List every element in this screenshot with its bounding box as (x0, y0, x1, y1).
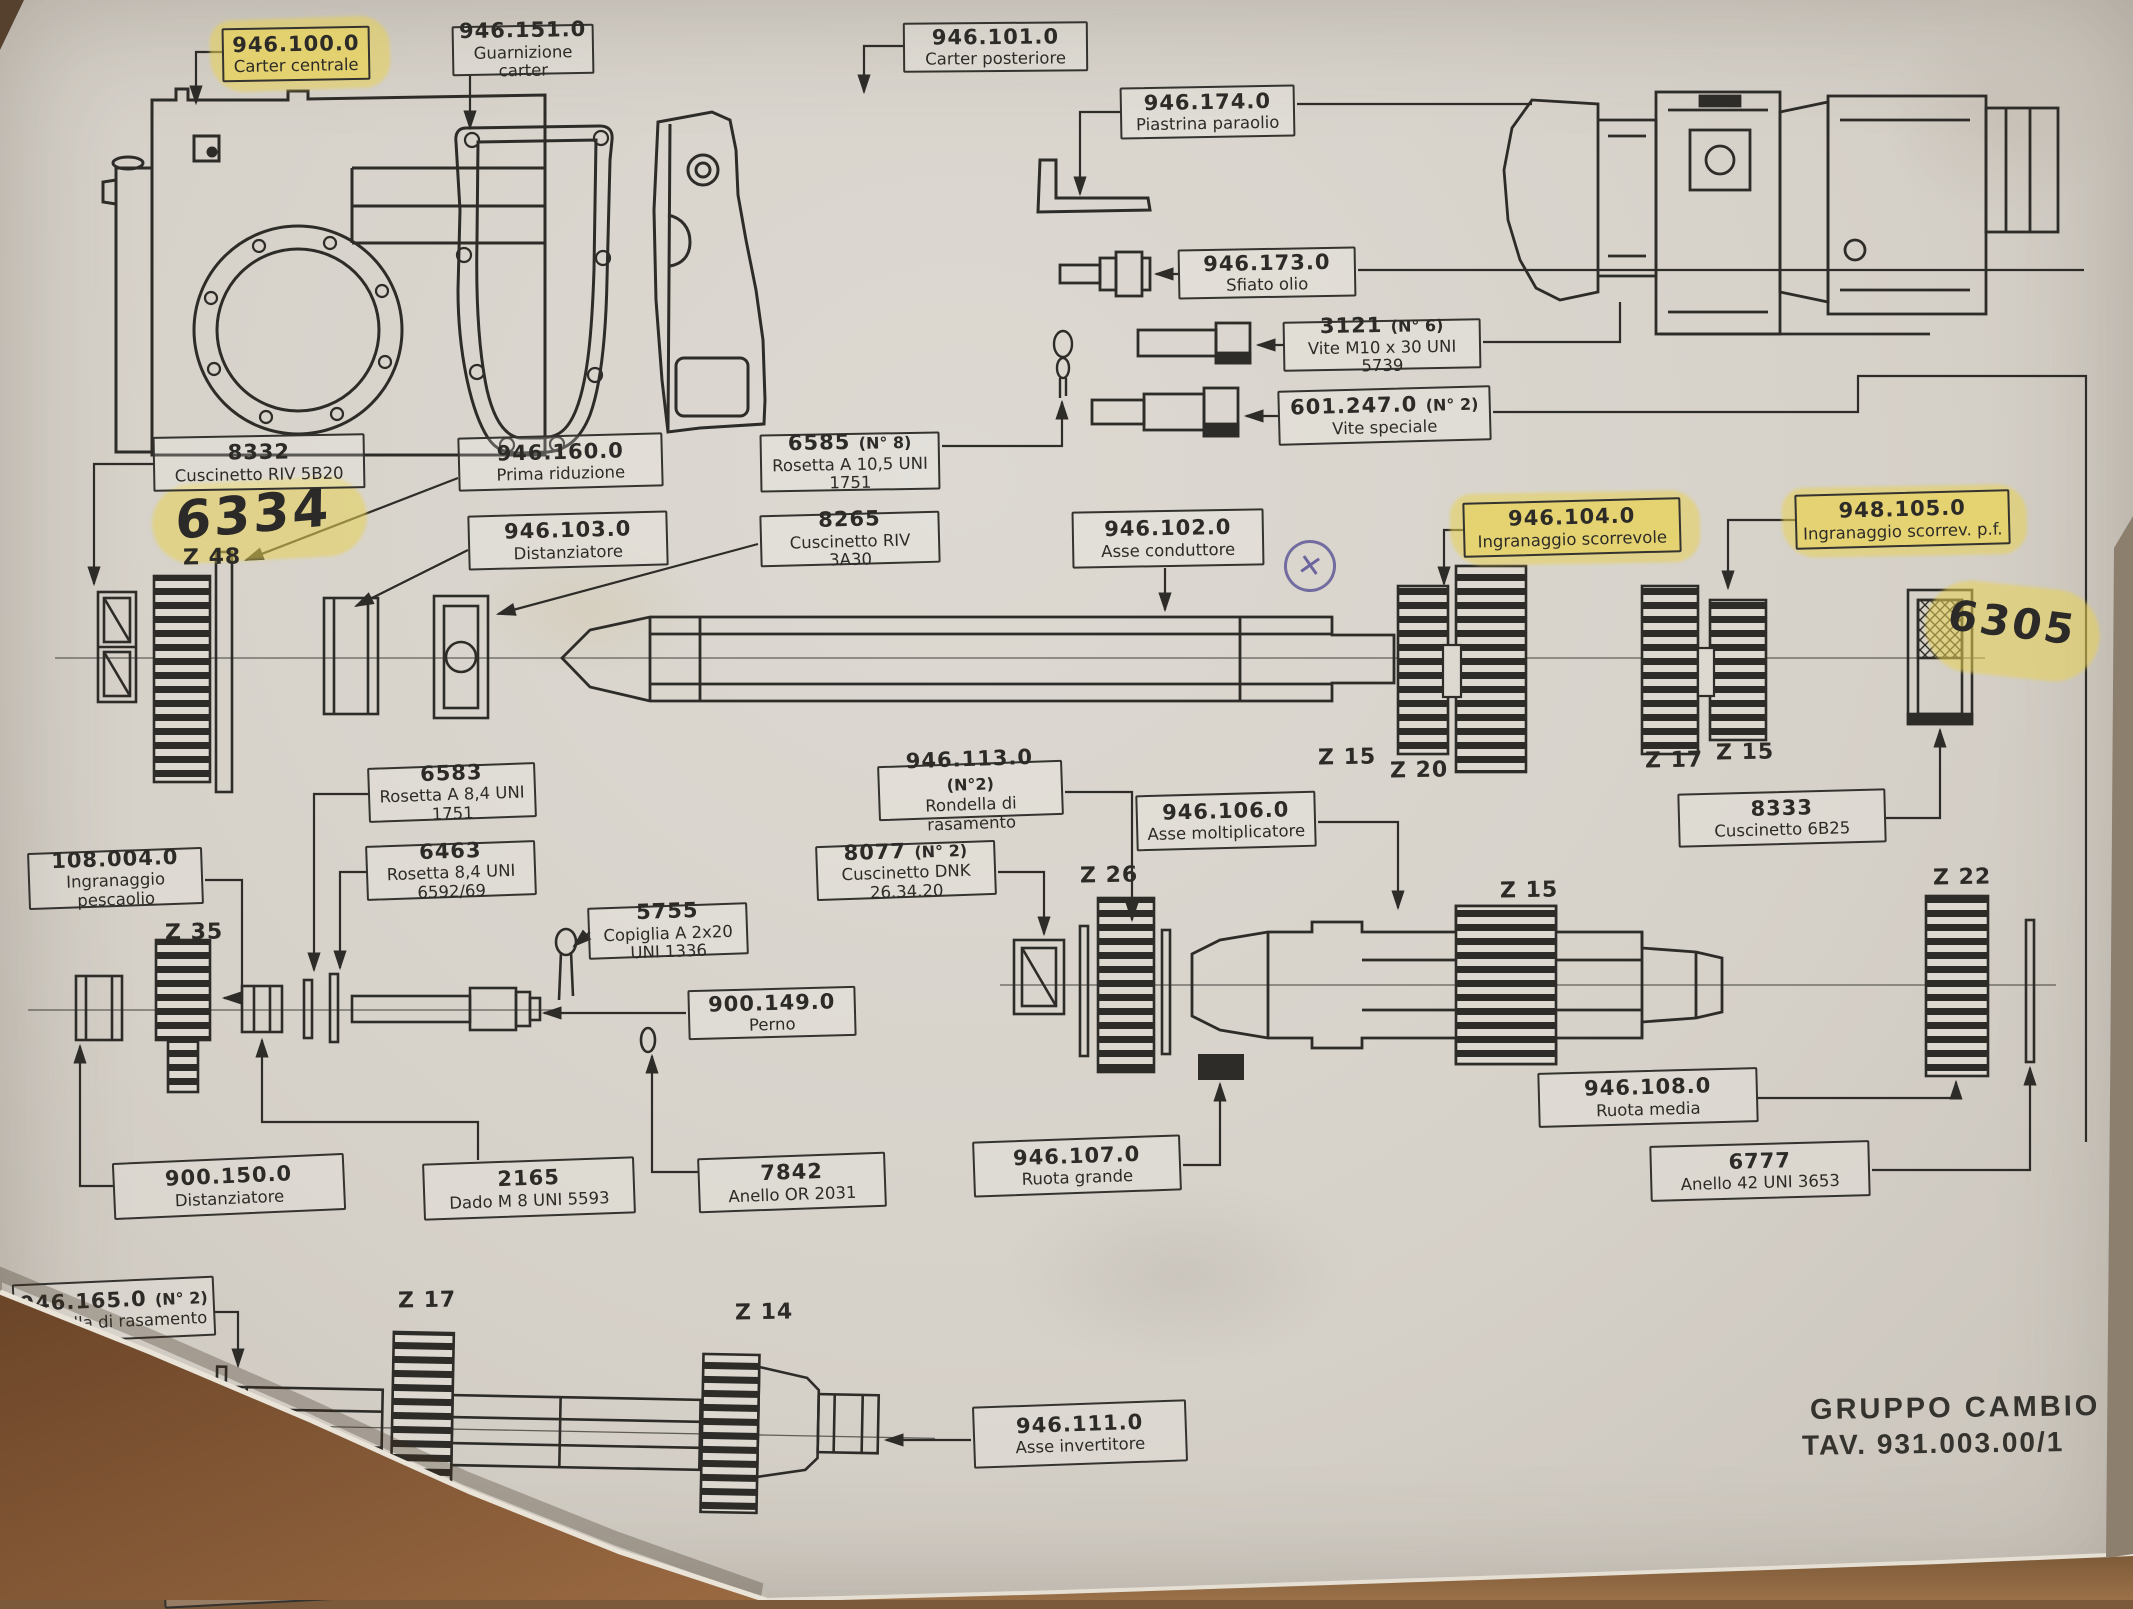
gear-count-label: Z 35 (165, 919, 224, 945)
part-label-8265: 8265 Cuscinetto RIV 3A30 (759, 511, 940, 568)
part-label-900-149-0: 900.149.0 Perno (687, 986, 856, 1040)
part-label-946-107-0: 946.107.0 Ruota grande (972, 1134, 1182, 1197)
multiplicator-row (1014, 896, 2034, 1080)
part-label-900-150-0: 900.150.0 Distanziatore (112, 1153, 346, 1220)
photographed-parts-diagram: { "document": { "title_block": { "line1"… (0, 0, 2133, 1600)
gear-count-label: Z 14 (735, 1299, 794, 1325)
part-label-946-113-0: 946.113.0 (N°2)Rondella di rasamento (877, 760, 1064, 821)
part-label-6777: 6777 Anello 42 UNI 3653 (1649, 1140, 1870, 1202)
part-label-946-102-0: 946.102.0 Asse conduttore (1072, 508, 1265, 568)
gear-count-label: Z 26 (1080, 862, 1139, 888)
part-label-108-004-0: 108.004.0 Ingranaggio pescaolio (27, 847, 204, 910)
part-label-3121: 3121 (N° 6)Vite M10 x 30 UNI 5739 (1283, 318, 1482, 371)
part-label-946-108-0: 946.108.0 Ruota media (1537, 1067, 1758, 1128)
gear-count-label: Z 15 (1500, 877, 1559, 903)
part-label-2165: 2165 Dado M 8 UNI 5593 (422, 1156, 636, 1220)
part-label-946-111-0: 946.111.0 Asse invertitore (972, 1399, 1188, 1468)
part-label-8088: 8088 (N° 2)RNA 20.28.23 (162, 1539, 387, 1609)
part-label-946-160-0: 946.160.0 Prima riduzione (457, 432, 663, 491)
gear-count-label: Z 22 (1933, 864, 1992, 890)
gear-count-label: Z 15 (1318, 744, 1377, 770)
part-label-946-100-0: 946.100.0 Carter centrale (222, 26, 371, 83)
part-label-946-104-0: 946.104.0 Ingranaggio scorrevole (1462, 497, 1681, 558)
part-label-6585: 6585 (N° 8)Rosetta A 10,5 UNI 1751 (760, 431, 941, 492)
washer-pin-drawing (1054, 331, 1072, 398)
part-label-946-151-0: 946.151.0 Guarnizione carter (452, 24, 595, 76)
part-label-5755: 5755 Copiglia A 2x20 UNI 1336 (587, 902, 749, 960)
part-label-946-165-0: 946.165.0 (N° 2)Rondella di rasamento (12, 1276, 216, 1345)
title-table-number: TAV. 931.003.00/1 (1802, 1426, 2065, 1462)
part-label-601-247-0: 601.247.0 (N° 2)Vite speciale (1277, 385, 1491, 446)
gear-count-label: Z 17 (398, 1287, 457, 1313)
gear-count-label: Z 17 (1645, 747, 1704, 773)
part-label-948-105-0: 948.105.0 Ingranaggio scorrev. p.f. (1794, 489, 2010, 550)
title-group-name: GRUPPO CAMBIO (1810, 1390, 2101, 1427)
gear-count-label: Z 15 (1716, 739, 1775, 765)
guarnizione-drawing (456, 126, 612, 453)
part-label-8332: 8332 Cuscinetto RIV 5B20 (153, 433, 366, 492)
part-label-6463: 6463 Rosetta 8,4 UNI 6592/69 (365, 840, 537, 901)
sfiato-drawing (1060, 252, 1150, 296)
part-label-946-174-0: 946.174.0 Piastrina paraolio (1120, 84, 1296, 139)
engine-assembly-drawing (1504, 92, 2058, 334)
bolt-drawings (1092, 323, 1250, 436)
part-label-946-101-0: 946.101.0 Carter posteriore (903, 21, 1088, 73)
part-label-946-173-0: 946.173.0 Sfiato olio (1178, 246, 1357, 299)
part-label-8077: 8077 (N° 2)Cuscinetto DNK 26.34.20 (815, 840, 997, 901)
part-label-946-103-0: 946.103.0 Distanziatore (467, 510, 668, 570)
part-label-8333: 8333 Cuscinetto 6B25 (1677, 788, 1886, 847)
asse-invertitore-row (38, 1325, 936, 1530)
gear-count-label: Z 20 (1390, 757, 1449, 783)
part-label-946-106-0: 946.106.0 Asse moltiplicatore (1135, 791, 1316, 852)
piastrina-drawing (1038, 160, 1150, 212)
carter-posteriore-drawing (654, 112, 765, 432)
part-label-7842: 7842 Anello OR 2031 (697, 1152, 887, 1214)
part-label-6583: 6583 Rosetta A 8,4 UNI 1751 (367, 762, 537, 823)
